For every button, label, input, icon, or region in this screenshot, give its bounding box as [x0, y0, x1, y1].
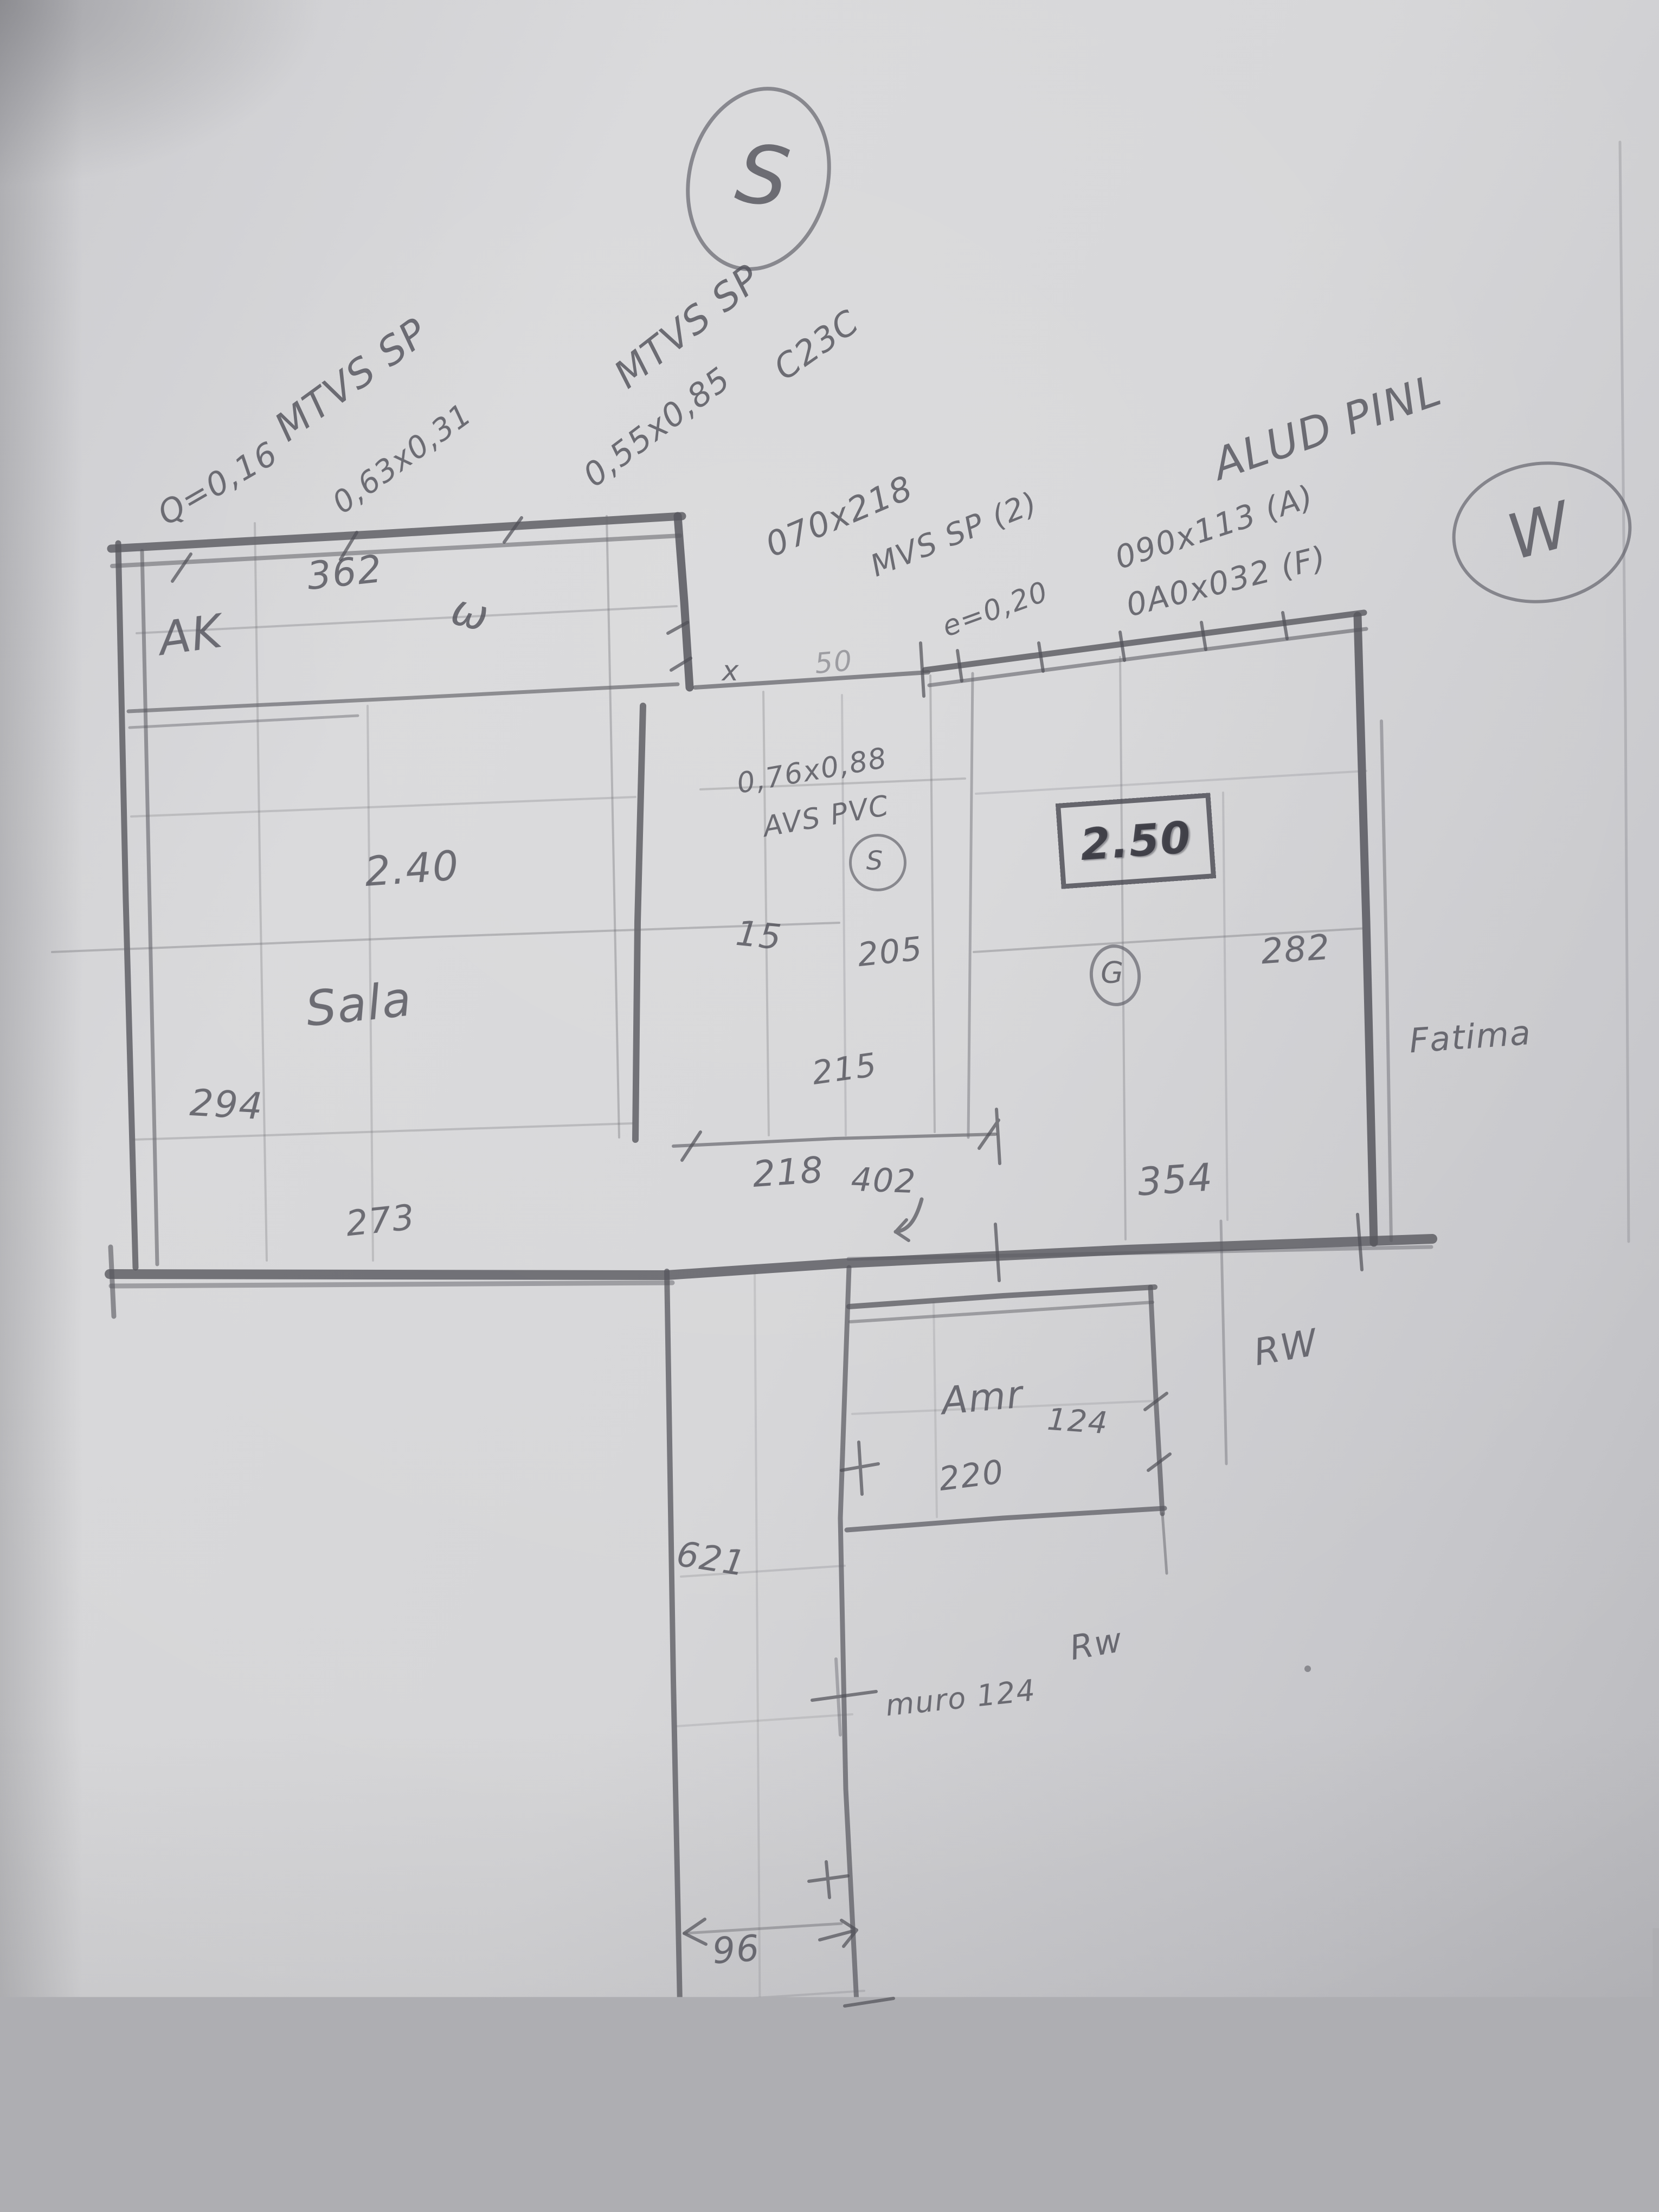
- dim-218: 218: [751, 1149, 825, 1195]
- wall-corridor-bottom: [683, 2041, 874, 2056]
- wall-corridor-left: [667, 1271, 681, 2057]
- dim-x-mark: x: [722, 655, 740, 687]
- dim-96: 96: [711, 1927, 761, 1972]
- dim-15: 15: [734, 914, 785, 959]
- wall-left: [118, 543, 136, 1268]
- dim-273: 273: [344, 1198, 417, 1245]
- room-label-ak: AK: [156, 605, 227, 666]
- dim-354: 354: [1136, 1155, 1215, 1205]
- wall-strip-bottom: [128, 684, 678, 711]
- wall-baseline: [110, 1239, 1432, 1275]
- dim-362: 362: [305, 546, 384, 599]
- pvc-badge-letter: S: [866, 846, 884, 876]
- room-label-amr: Amr: [940, 1372, 1025, 1424]
- dim-124: 124: [1046, 1402, 1109, 1442]
- wall-amr-bottom: [847, 1508, 1165, 1530]
- dim-220: 220: [937, 1453, 1006, 1499]
- dim-282: 282: [1259, 928, 1332, 973]
- dim-240: 2.40: [363, 841, 461, 896]
- dim-294: 294: [189, 1082, 265, 1128]
- dim-250: 2.50: [1078, 812, 1193, 870]
- wall-strip-top: [111, 516, 682, 549]
- pencil-dot: [1562, 2130, 1570, 2137]
- dim-line-218: [673, 1134, 995, 1146]
- boxed-dimension: 2.50: [1056, 793, 1216, 889]
- dimension-ticks: [172, 518, 1362, 2006]
- badge-g-letter: G: [1101, 956, 1124, 990]
- floorplan-sketch-photo: S W MTVS SP Q=0,16 0,63x0,31 MTVS SP C23…: [0, 0, 1659, 2212]
- wall-center-left: [635, 706, 643, 1140]
- room-label-sala: Sala: [303, 971, 415, 1038]
- dim-50: 50: [813, 645, 854, 680]
- dim-205: 205: [856, 930, 924, 974]
- dim-402: 402: [851, 1161, 917, 1201]
- pencil-dot: [1304, 1666, 1311, 1672]
